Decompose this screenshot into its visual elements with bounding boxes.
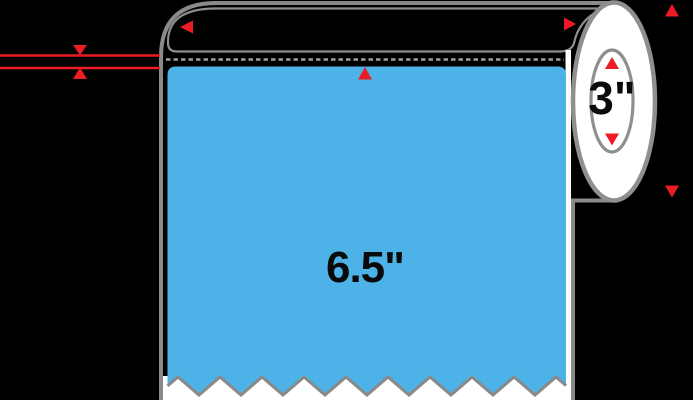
label-roll-diagram: 3" 6.5" <box>0 0 693 400</box>
core-diameter-text: 3" <box>588 72 635 124</box>
label-width-text: 6.5" <box>326 243 404 292</box>
liner-right-margin <box>566 50 572 400</box>
label-face <box>168 67 567 396</box>
